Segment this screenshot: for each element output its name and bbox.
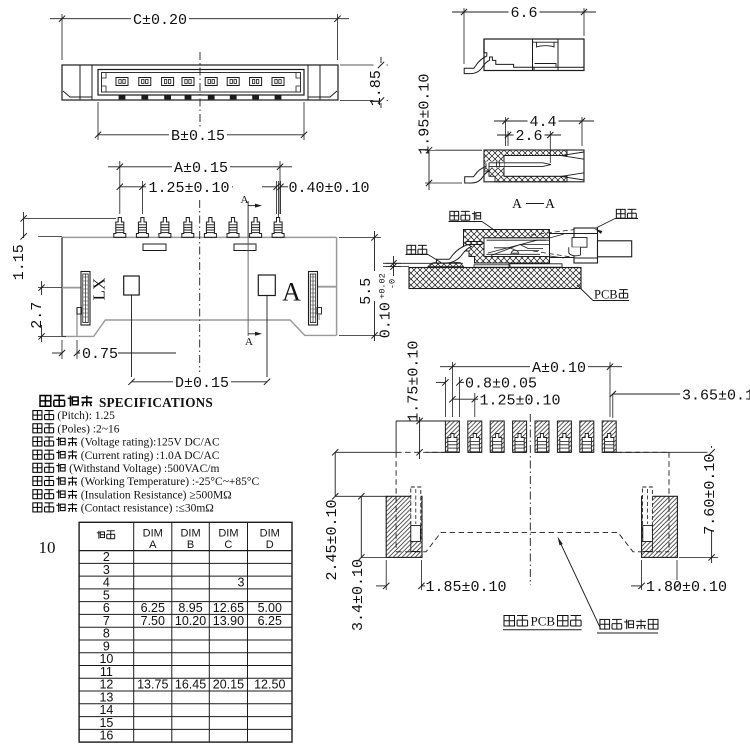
svg-text:5.5: 5.5: [358, 278, 375, 305]
svg-text:(Withstand Voltage) :500VAC/m: (Withstand Voltage) :500VAC/m: [69, 463, 219, 475]
svg-text:A±0.15: A±0.15: [174, 160, 228, 177]
svg-text:D: D: [266, 539, 274, 551]
svg-text:1.25±0.10: 1.25±0.10: [148, 180, 229, 197]
svg-text:1.85±0.10: 1.85±0.10: [425, 579, 506, 596]
svg-text:10: 10: [39, 538, 56, 557]
svg-text:20.15: 20.15: [213, 678, 244, 692]
svg-text:6.6: 6.6: [510, 5, 537, 22]
svg-text:2.6: 2.6: [515, 128, 542, 145]
svg-text:DIM: DIM: [143, 528, 163, 540]
svg-text:1.95±0.10: 1.95±0.10: [417, 74, 434, 155]
svg-text:13.90: 13.90: [213, 614, 244, 628]
svg-text:0.40±0.10: 0.40±0.10: [288, 180, 369, 197]
svg-text:A: A: [245, 336, 253, 348]
svg-text:0.75: 0.75: [82, 346, 118, 363]
svg-text:A: A: [282, 278, 301, 307]
svg-text:13.75: 13.75: [137, 678, 168, 692]
svg-text:(Insulation Resistance) ≥500MΩ: (Insulation Resistance) ≥500MΩ: [81, 489, 232, 501]
svg-text:B±0.15: B±0.15: [171, 128, 225, 145]
svg-text:DIM: DIM: [180, 528, 200, 540]
svg-text:LX: LX: [90, 278, 109, 301]
svg-text:3: 3: [238, 576, 245, 590]
svg-text:2.45±0.10: 2.45±0.10: [324, 499, 341, 580]
svg-text:(Current rating) :1.0A DC/AC: (Current rating) :1.0A DC/AC: [81, 450, 220, 462]
svg-text:16.45: 16.45: [175, 678, 206, 692]
svg-text:-0: -0: [388, 279, 398, 289]
svg-text:6.25: 6.25: [258, 614, 282, 628]
svg-text:A: A: [512, 196, 522, 211]
svg-text:(Contact resistance) :≤30mΩ: (Contact resistance) :≤30mΩ: [81, 503, 214, 515]
svg-text:B: B: [187, 539, 194, 551]
svg-text:3.65±0.10: 3.65±0.10: [682, 387, 750, 404]
svg-text:0.8±0.05: 0.8±0.05: [465, 376, 537, 393]
svg-text:16: 16: [99, 729, 113, 743]
svg-text:12.50: 12.50: [254, 678, 285, 692]
svg-text:+0.02: +0.02: [378, 273, 388, 299]
svg-text:(Pitch): 1.25: (Pitch): 1.25: [57, 410, 115, 422]
svg-text:1.15: 1.15: [11, 244, 28, 280]
svg-text:1.75±0.10: 1.75±0.10: [406, 341, 423, 422]
svg-text:(Poles) :2~16: (Poles) :2~16: [57, 423, 119, 435]
svg-text:DIM: DIM: [260, 528, 280, 540]
svg-text:10.20: 10.20: [175, 614, 206, 628]
svg-text:C: C: [224, 539, 232, 551]
svg-text:1.80±0.10: 1.80±0.10: [646, 579, 727, 596]
svg-text:1.85: 1.85: [368, 70, 385, 106]
svg-text:7.50: 7.50: [141, 614, 165, 628]
svg-text:D±0.15: D±0.15: [175, 375, 229, 392]
svg-text:1.25±0.10: 1.25±0.10: [479, 392, 560, 409]
svg-text:A: A: [545, 196, 555, 211]
svg-text:(Working Temperature) :-25°C~+: (Working Temperature) :-25°C~+85°C: [81, 476, 260, 488]
svg-text:A: A: [241, 194, 249, 206]
svg-text:C±0.20: C±0.20: [133, 12, 187, 29]
svg-text:2.7: 2.7: [29, 302, 46, 329]
svg-text:A: A: [149, 539, 157, 551]
svg-text:A±0.10: A±0.10: [532, 360, 586, 377]
svg-text:7.60±0.10: 7.60±0.10: [702, 454, 719, 535]
svg-text:SPECIFICATIONS: SPECIFICATIONS: [99, 395, 213, 410]
svg-text:DIM: DIM: [218, 528, 238, 540]
svg-text:PCB: PCB: [594, 288, 618, 302]
svg-text:(Voltage rating):125V DC/AC: (Voltage rating):125V DC/AC: [81, 437, 220, 449]
svg-text:0.10: 0.10: [378, 302, 395, 338]
svg-text:3.4±0.10: 3.4±0.10: [350, 559, 367, 631]
svg-text:PCB: PCB: [531, 614, 556, 629]
